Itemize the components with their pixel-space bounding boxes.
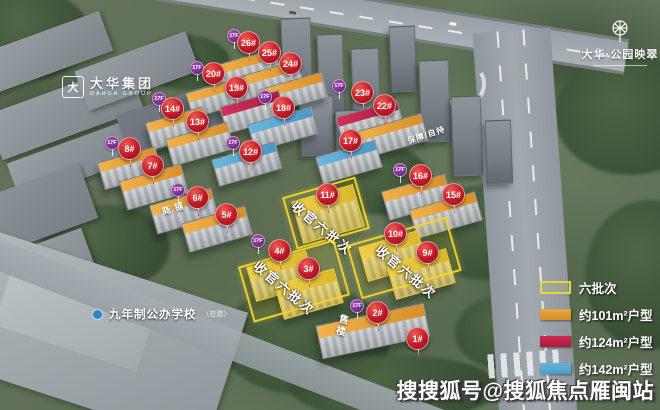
building-label-12: 12#	[239, 140, 262, 163]
building-label-13: 13#	[186, 110, 209, 133]
building-label-26: 26#	[237, 31, 260, 54]
floor-marker: 17F	[332, 79, 346, 93]
school-label: 九年制公办学校 （在建）	[92, 306, 231, 322]
floor-marker: 17F	[171, 183, 185, 197]
school-icon	[92, 309, 103, 320]
legend-label: 六批次	[579, 278, 617, 297]
building-label-8: 8#	[118, 137, 141, 160]
building-label-1: 1#	[406, 327, 429, 350]
building-label-5: 5#	[215, 203, 238, 226]
batch-group-outline	[238, 239, 350, 322]
building-label-7: 7#	[141, 154, 164, 177]
legend-swatch-crimson	[540, 336, 571, 347]
school-status: （在建）	[203, 309, 231, 319]
building-label-10: 10#	[384, 222, 407, 245]
building-label-6: 6#	[186, 186, 209, 209]
legend-rows: 六批次约101m²户型约124m²户型约142m²户型	[540, 278, 653, 378]
legend-row: 六批次	[540, 278, 653, 297]
logo-divider	[593, 65, 647, 66]
developer-name-en: DAHUA GROUP	[90, 91, 154, 97]
building-label-20: 20#	[202, 62, 225, 85]
legend-swatch-blue	[540, 363, 571, 374]
building-label-19: 19#	[225, 76, 248, 99]
developer-name-cn: 大华集团	[90, 77, 154, 91]
floor-marker: 17F	[258, 90, 272, 104]
legend-row: 约101m²户型	[540, 305, 653, 324]
developer-logo: 大 大华集团 DAHUA GROUP	[62, 76, 154, 98]
dahua-logo-icon: 大	[62, 76, 84, 98]
building-label-14: 14#	[161, 97, 184, 120]
floor-marker: 17F	[226, 136, 240, 150]
building-label-16: 16#	[409, 164, 432, 187]
building-label-25: 25#	[258, 41, 281, 64]
building-label-9: 9#	[416, 241, 439, 264]
building-label-18: 18#	[272, 96, 295, 119]
project-name: 大华·公园映翠	[580, 46, 660, 62]
legend-row: 约124m²户型	[540, 332, 653, 351]
building-label-11: 11#	[316, 183, 339, 206]
building-label-15: 15#	[442, 183, 465, 206]
building-label-23: 23#	[351, 81, 374, 104]
legend-label: 约124m²户型	[579, 332, 653, 351]
floor-marker: 17F	[350, 299, 364, 313]
floor-marker: 17F	[251, 234, 265, 248]
legend-swatch-outline	[540, 281, 571, 294]
project-logo: 大华·公园映翠	[580, 18, 660, 66]
school-name: 九年制公办学校	[109, 306, 197, 322]
building-label-4: 4#	[268, 239, 291, 262]
floor-marker: 17F	[393, 163, 407, 177]
building-label-22: 22#	[373, 94, 396, 117]
legend-label: 约101m²户型	[579, 305, 653, 324]
building-label-3: 3#	[297, 257, 320, 280]
building-label-2: 2#	[366, 301, 389, 324]
floor-marker: 17F	[105, 136, 119, 150]
aerial-site-plan: 收官六批次收官六批次收官六批次保障/自持商铺售楼26#25#24#23#22#2…	[0, 0, 660, 410]
tree-icon	[607, 18, 633, 44]
building-label-17: 17#	[339, 129, 362, 152]
legend-swatch-orange	[540, 309, 571, 320]
building-label-24: 24#	[279, 52, 302, 75]
watermark: 搜搜狐号@搜狐焦点雁闽站	[397, 375, 654, 405]
